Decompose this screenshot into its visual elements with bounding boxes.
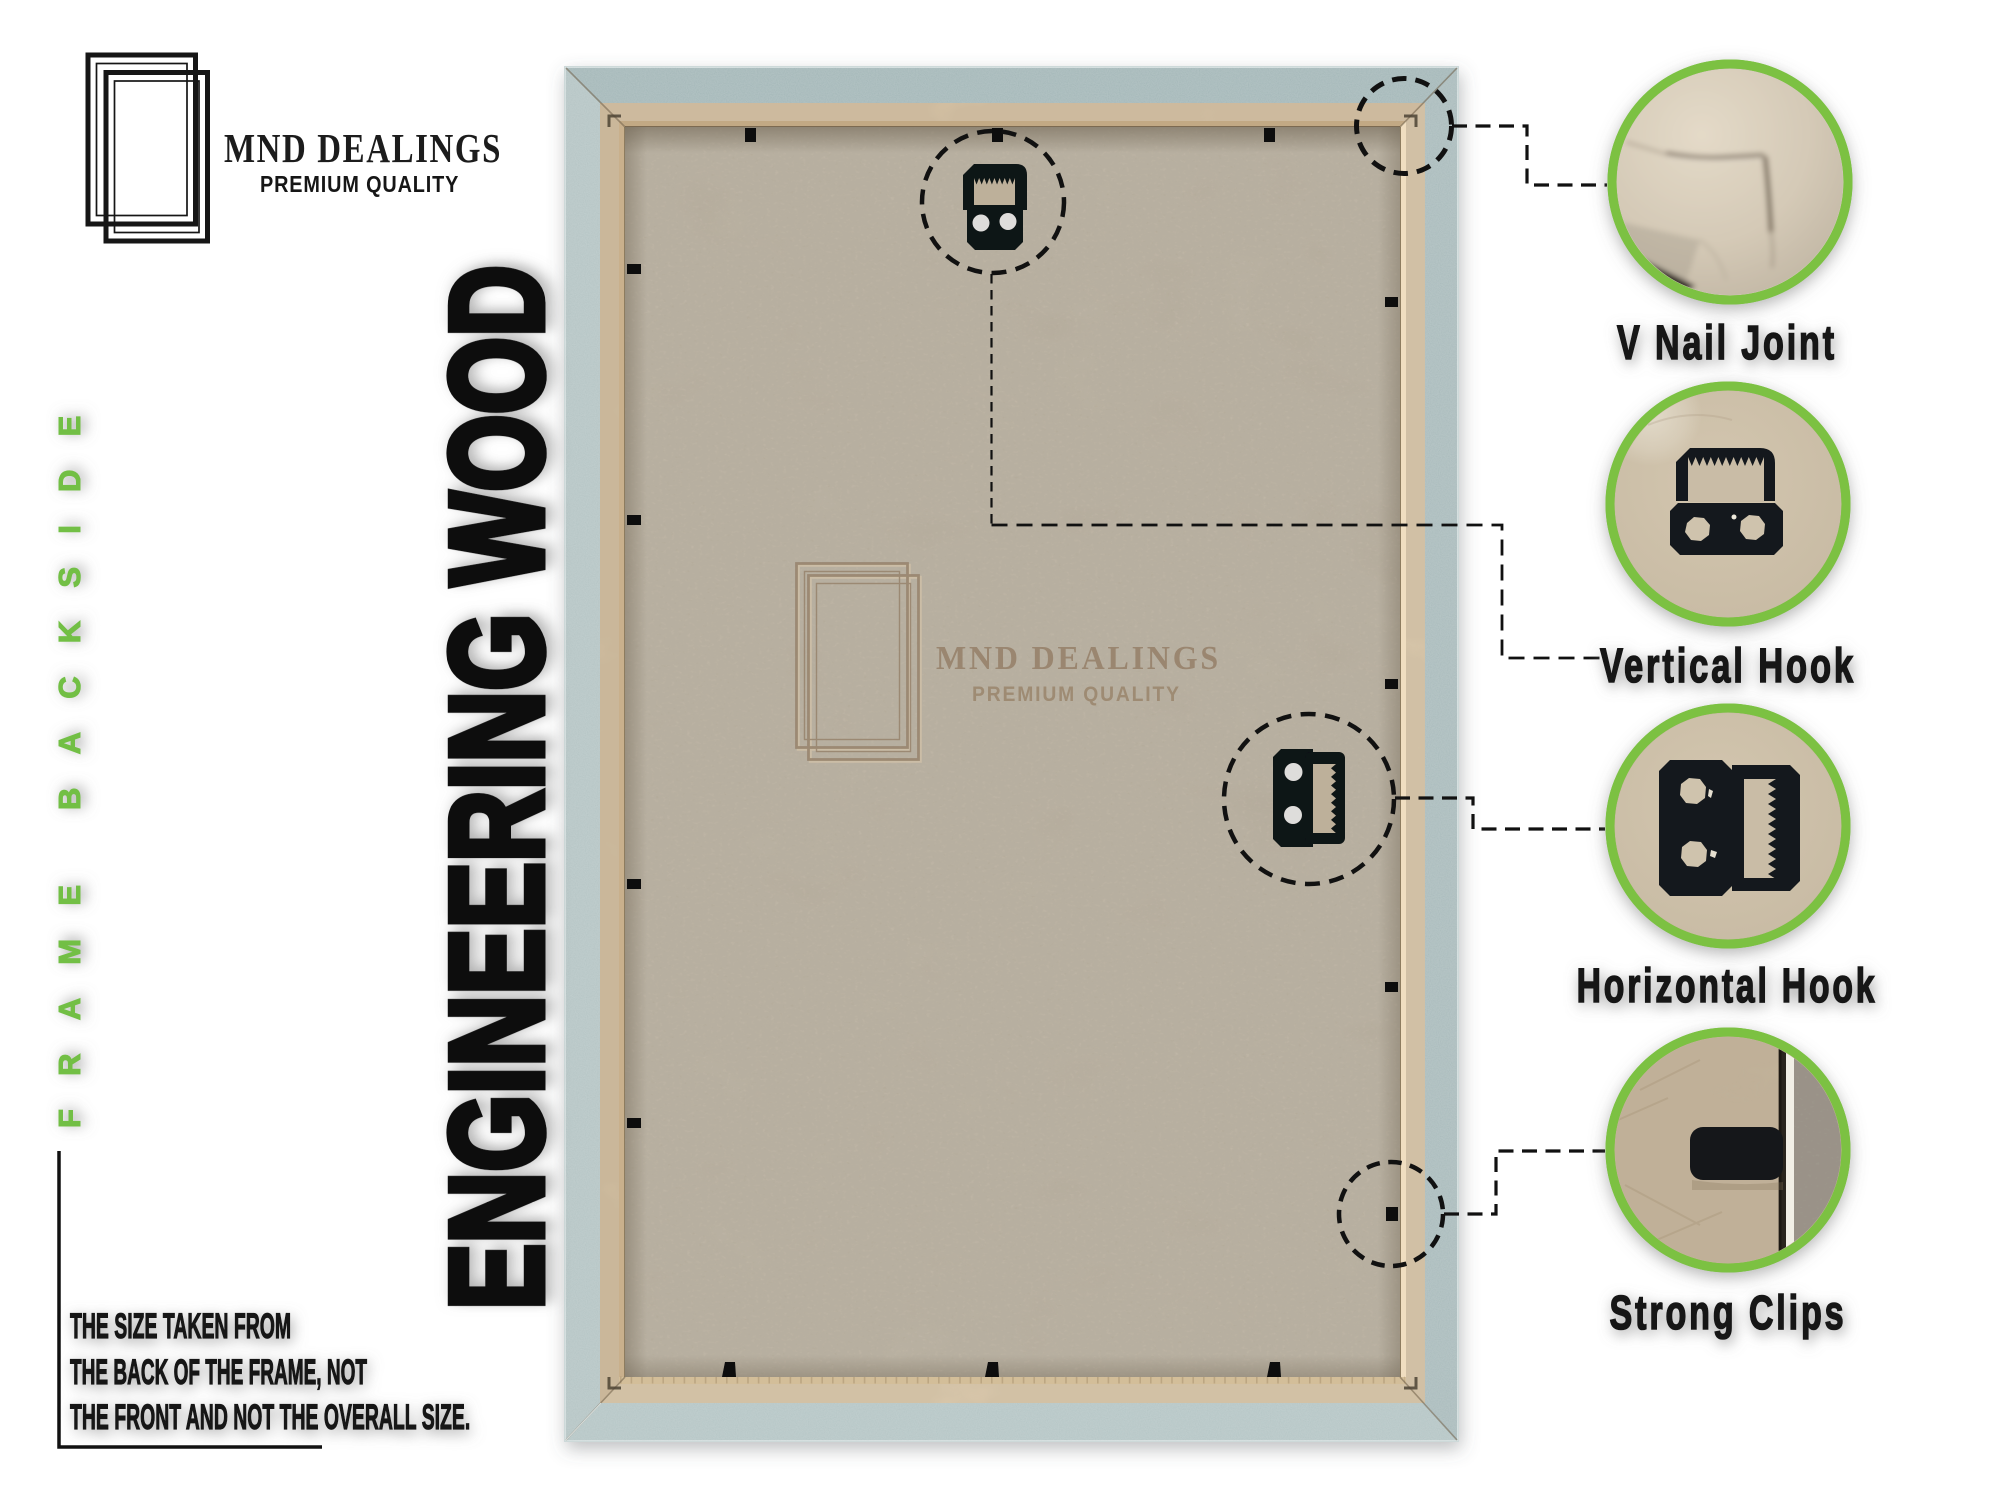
svg-text:THE BACK OF THE FRAME, NOT: THE BACK OF THE FRAME, NOT [70,1352,367,1392]
svg-text:Vertical Hook: Vertical Hook [1600,638,1856,692]
svg-text:THE FRONT AND NOT THE OVERALL: THE FRONT AND NOT THE OVERALL SIZE. [70,1397,470,1437]
svg-text:PREMIUM QUALITY: PREMIUM QUALITY [972,683,1181,706]
svg-text:MND DEALINGS: MND DEALINGS [224,127,502,172]
svg-text:PREMIUM QUALITY: PREMIUM QUALITY [260,172,459,198]
svg-text:ENGINEERING WOOD: ENGINEERING WOOD [422,265,570,1310]
svg-text:Horizontal Hook: Horizontal Hook [1577,958,1878,1012]
svg-text:V Nail Joint: V Nail Joint [1617,315,1837,369]
svg-text:MND DEALINGS: MND DEALINGS [936,640,1221,677]
svg-text:THE SIZE TAKEN FROM: THE SIZE TAKEN FROM [70,1306,291,1346]
svg-text:Strong Clips: Strong Clips [1610,1285,1847,1339]
svg-text:FRAME BACKSIDE: FRAME BACKSIDE [52,382,87,1128]
